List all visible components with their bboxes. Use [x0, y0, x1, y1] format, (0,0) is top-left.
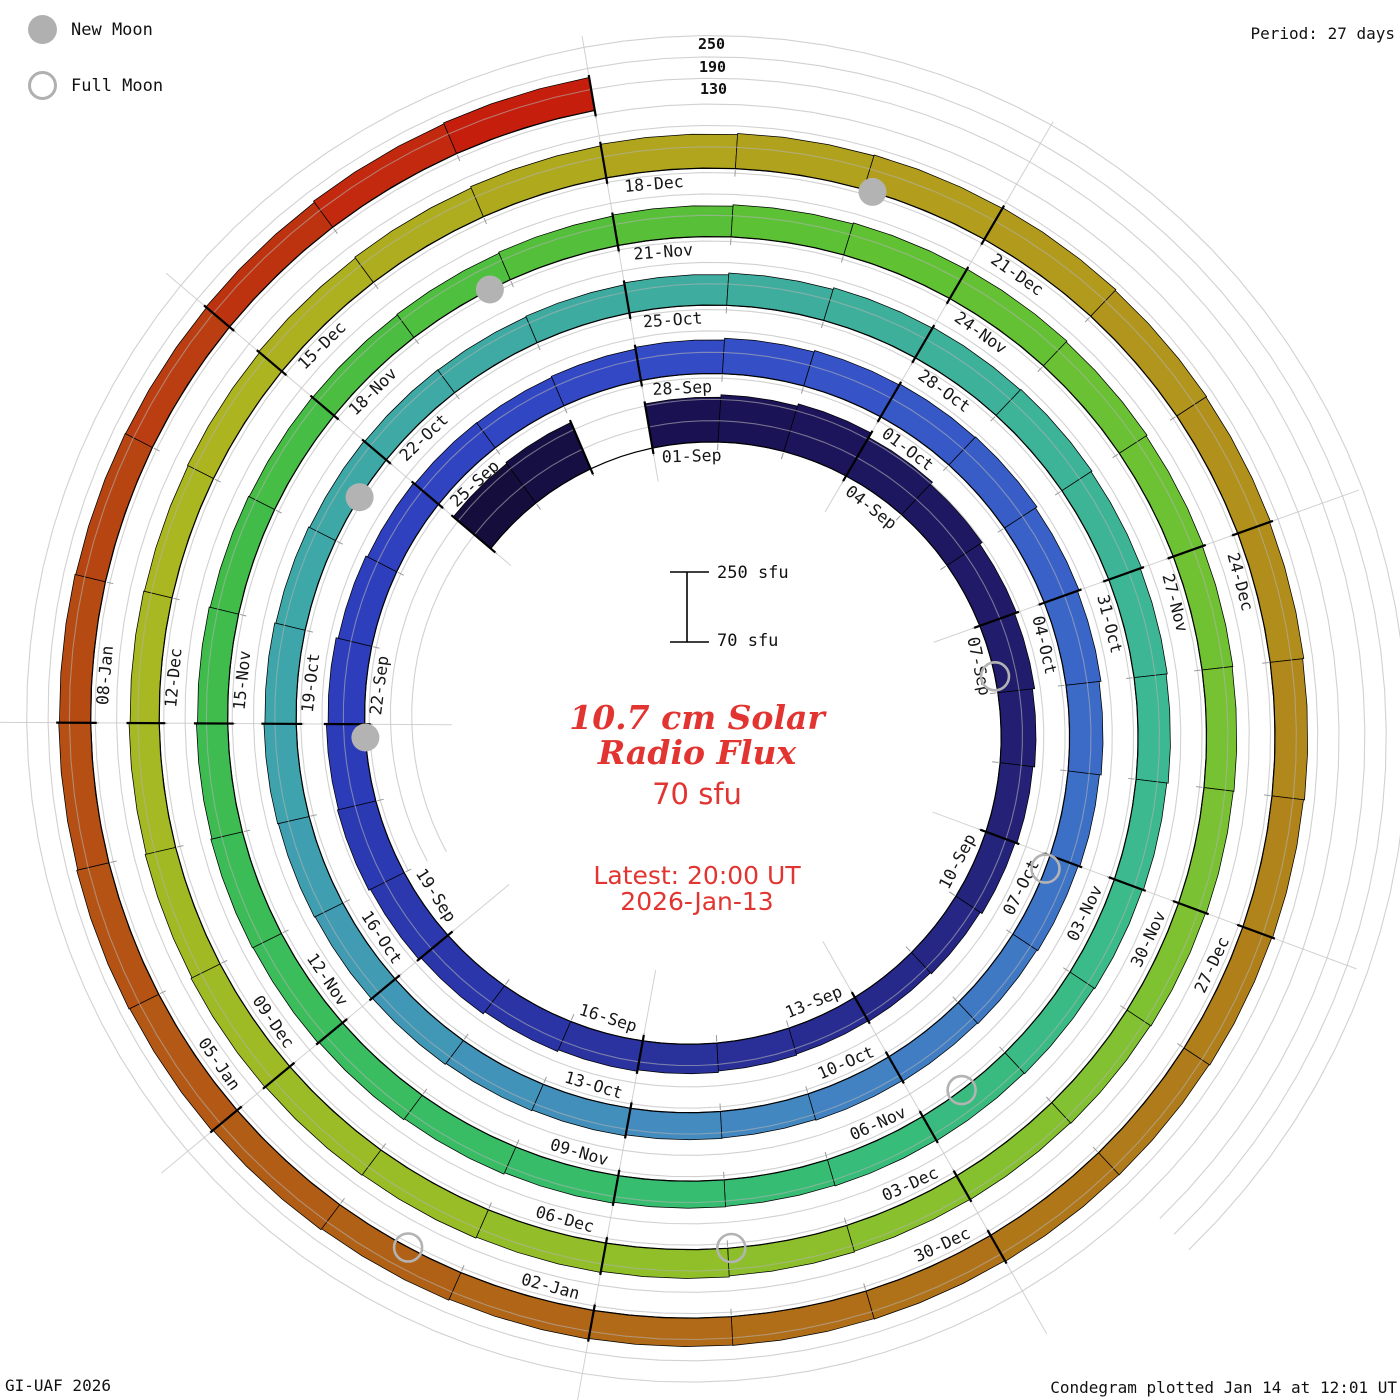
date-label: 25-Oct [642, 308, 703, 331]
date-label: 28-Sep [652, 377, 713, 399]
flux-bar [372, 979, 463, 1064]
date-label: 15-Nov [230, 650, 255, 711]
radial-axis-label-250: 250 [698, 35, 725, 53]
flux-bar [485, 986, 571, 1052]
flux-bar [249, 397, 334, 509]
scalebar-top-label: 250 sfu [717, 563, 789, 583]
flux-bar [731, 1291, 874, 1345]
radial-axis-label-130: 130 [700, 80, 727, 98]
flux-bar [1177, 397, 1271, 533]
date-label: 21-Nov [633, 240, 694, 264]
flux-bar [1134, 674, 1170, 783]
flux-bar [276, 527, 336, 630]
flux-bar [986, 763, 1033, 844]
flux-bar [278, 817, 343, 918]
flux-bar [77, 863, 159, 1009]
latest-time-label: Latest: 20:00 UT [593, 861, 800, 890]
flux-scalebar [670, 572, 709, 642]
condegram-page: 01-Sep04-Sep07-Sep10-Sep13-Sep16-Sep19-S… [0, 0, 1400, 1400]
flux-bar [1270, 659, 1307, 800]
chart-title-line1: 10.7 cm Solar [569, 698, 825, 737]
flux-bar [589, 1311, 733, 1347]
flux-bar [958, 934, 1037, 1024]
scalebar-bottom-label: 70 sfu [717, 631, 778, 651]
flux-bar [338, 556, 397, 646]
flux-bar [1179, 788, 1234, 914]
legend-full-moon: Full Moon [28, 71, 163, 100]
flux-bar [998, 689, 1036, 767]
baseline-flux-label: 70 sfu [652, 777, 742, 811]
new-moon-marker [346, 483, 374, 511]
full-moon-icon [28, 71, 57, 100]
new-moon-marker [351, 724, 379, 752]
period-label: Period: 27 days [1251, 24, 1396, 43]
flux-bar [1202, 667, 1237, 792]
new-moon-marker [859, 178, 887, 206]
date-label: 22-Sep [366, 655, 392, 717]
flux-bar [601, 134, 738, 178]
plot-caption: Condegram plotted Jan 14 at 12:01 UT [1050, 1378, 1397, 1397]
flux-bar [912, 896, 981, 974]
flux-bar [264, 724, 309, 824]
flux-bar [601, 1243, 729, 1278]
flux-bar [731, 205, 853, 255]
flux-bar [824, 288, 933, 358]
flux-bar [1005, 972, 1094, 1074]
full-moon-label: Full Moon [71, 76, 163, 96]
date-label: 01-Sep [662, 446, 722, 467]
flux-bar [613, 206, 733, 246]
flux-bar [645, 397, 721, 448]
date-label: 08-Jan [93, 645, 117, 706]
date-label: 12-Dec [161, 647, 185, 708]
flux-bar [855, 953, 931, 1022]
flux-bar [804, 351, 900, 417]
flux-bar [717, 1028, 797, 1071]
new-moon-marker [476, 276, 504, 304]
flux-bar [499, 216, 618, 280]
legend-new-moon: New Moon [28, 15, 153, 44]
flux-bar [638, 1041, 719, 1074]
flux-bar [624, 275, 728, 313]
flux-bar [196, 723, 242, 839]
chart-title-line2: Radio Flux [598, 733, 796, 772]
latest-date-label: 2026-Jan-13 [620, 887, 773, 916]
flux-bar [626, 1108, 722, 1140]
new-moon-label: New Moon [71, 20, 153, 40]
flux-bar [337, 801, 404, 890]
flux-bar [1066, 682, 1103, 776]
date-label: 18-Dec [623, 172, 684, 196]
flux-bar [319, 1023, 422, 1120]
flux-bar [1050, 771, 1099, 867]
flux-bar [76, 434, 153, 582]
flux-bar [211, 832, 282, 948]
new-moon-icon [28, 15, 57, 44]
flux-bar [1243, 796, 1304, 938]
flux-bar [446, 1041, 543, 1111]
date-label: 19-Oct [298, 652, 323, 713]
flux-bar [526, 285, 630, 343]
flux-bar [471, 146, 607, 217]
credit-label: GI-UAF 2026 [5, 1376, 111, 1395]
flux-bar [957, 1103, 1071, 1200]
flux-bar [145, 847, 220, 977]
flux-bar [889, 1003, 978, 1082]
radial-axis-label-190: 190 [699, 58, 726, 76]
